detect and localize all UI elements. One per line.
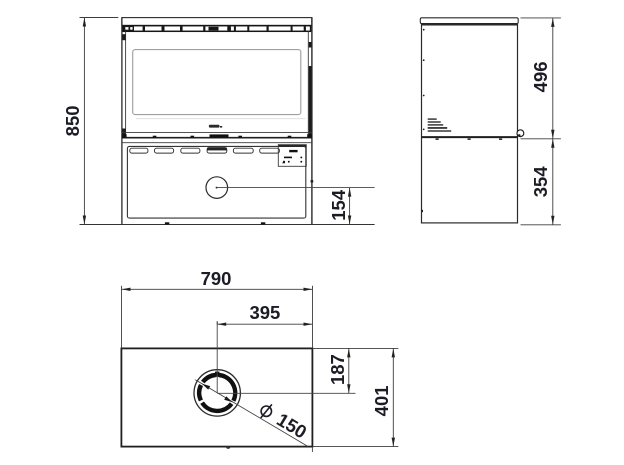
svg-text:850: 850 xyxy=(62,105,83,136)
svg-text:154: 154 xyxy=(328,189,349,221)
svg-text:401: 401 xyxy=(371,385,392,416)
svg-text:790: 790 xyxy=(201,268,232,289)
svg-text:496: 496 xyxy=(530,61,551,92)
svg-text:187: 187 xyxy=(327,354,348,385)
svg-text:395: 395 xyxy=(249,302,280,323)
svg-text:354: 354 xyxy=(530,166,551,198)
